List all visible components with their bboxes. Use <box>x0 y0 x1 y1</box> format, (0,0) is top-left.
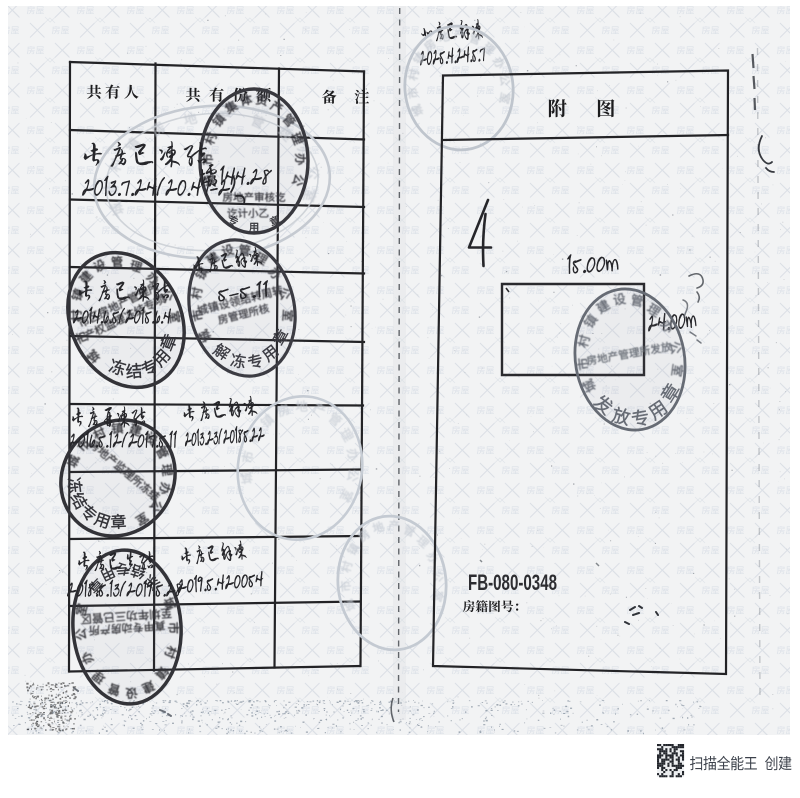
svg-text:FB-080-0348: FB-080-0348 <box>468 570 557 595</box>
